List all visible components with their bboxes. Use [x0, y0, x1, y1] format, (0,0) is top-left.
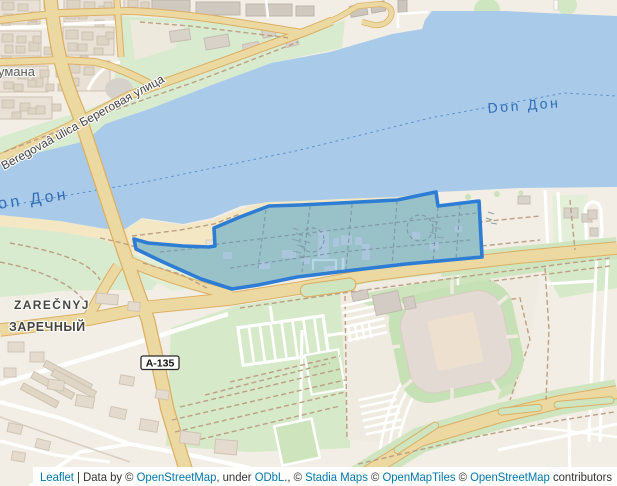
svg-text:Leaflet | Data by © OpenStreet: Leaflet | Data by © OpenStreetMap, under…	[40, 470, 612, 484]
svg-text:ЗАРЕЧНЫЙ: ЗАРЕЧНЫЙ	[9, 319, 86, 334]
svg-text:A-135: A-135	[146, 358, 175, 370]
svg-text:умана: умана	[0, 64, 36, 79]
svg-text:ZAREČNYJ: ZAREČNYJ	[14, 297, 90, 312]
